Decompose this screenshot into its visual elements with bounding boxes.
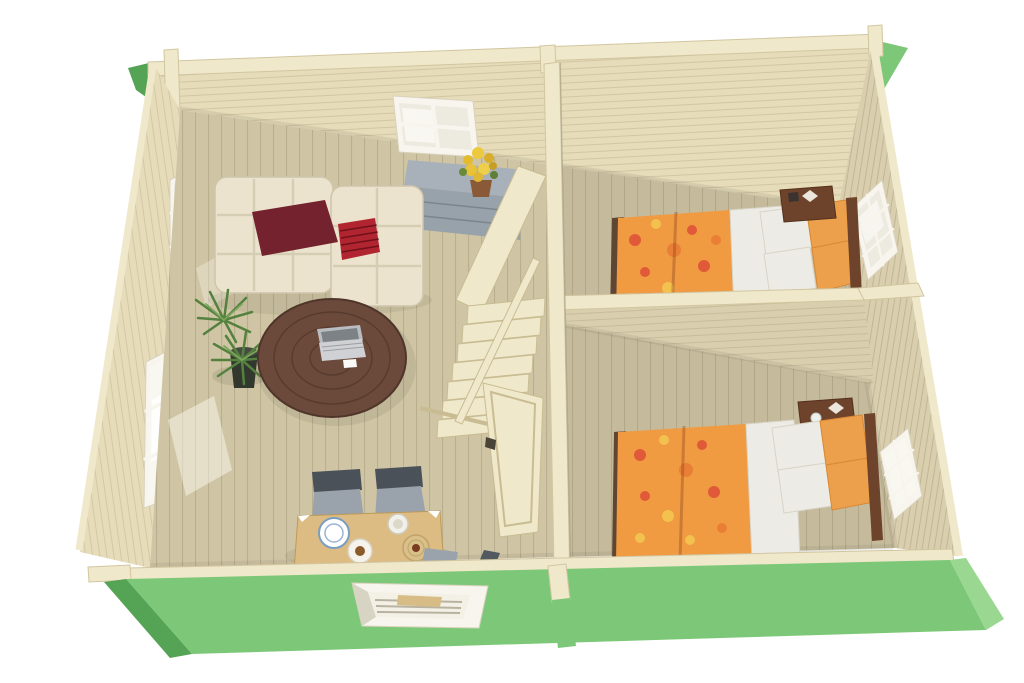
plate-blue xyxy=(319,518,349,548)
dining-chair-right xyxy=(375,466,426,519)
nightstand-dark-item xyxy=(788,192,799,202)
plate-food xyxy=(348,539,372,563)
white-pillow-2 xyxy=(778,463,832,513)
orange-pillow-2 xyxy=(826,458,874,510)
center-wall-end-cap xyxy=(548,564,570,602)
cup-and-saucer xyxy=(388,514,408,534)
front-wall xyxy=(88,549,1004,658)
flower-pot-base xyxy=(470,180,492,197)
nightstand-top xyxy=(780,186,836,222)
paper-sheet xyxy=(343,359,357,368)
cabin-floorplan-render: Cutaway top view 3D render of a green wo… xyxy=(0,0,1024,683)
white-pillow-2 xyxy=(764,247,816,296)
cabin-render-canvas: Cutaway top view 3D render of a green wo… xyxy=(0,0,1024,683)
sofa xyxy=(208,177,432,316)
back-window xyxy=(393,96,479,157)
window-sill-item xyxy=(397,595,442,607)
front-window xyxy=(352,583,488,628)
orange-pillow-1 xyxy=(820,415,868,465)
